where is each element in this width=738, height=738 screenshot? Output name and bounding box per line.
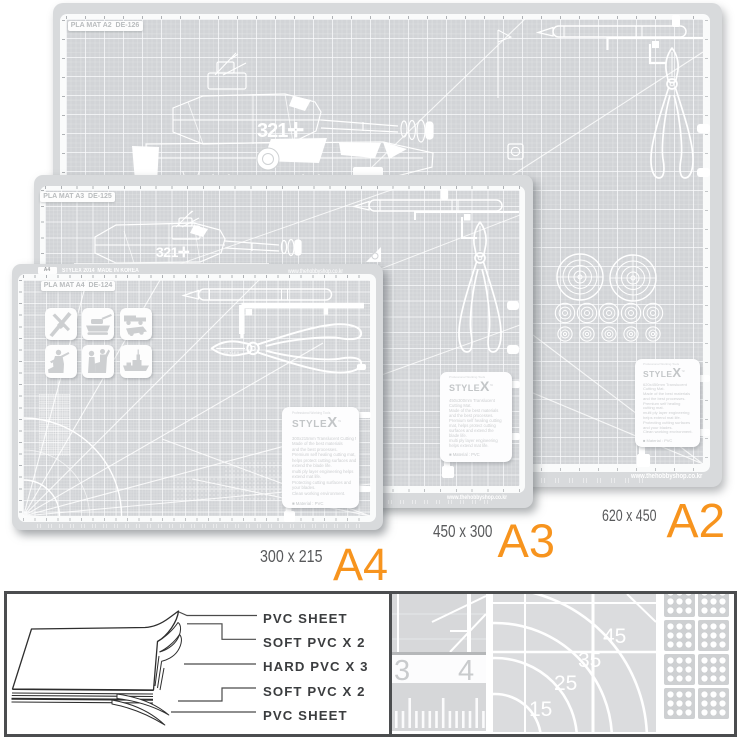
svg-text:45: 45 — [603, 625, 626, 648]
svg-text:STYLEX: STYLEX — [224, 350, 240, 355]
svg-text:4: 4 — [458, 655, 474, 687]
svg-text:25: 25 — [554, 672, 577, 695]
svg-text:321✛: 321✛ — [156, 244, 190, 260]
svg-text:35: 35 — [578, 649, 601, 672]
svg-text:15: 15 — [529, 698, 552, 721]
svg-text:321✛: 321✛ — [257, 120, 304, 142]
svg-text:3: 3 — [394, 655, 410, 687]
